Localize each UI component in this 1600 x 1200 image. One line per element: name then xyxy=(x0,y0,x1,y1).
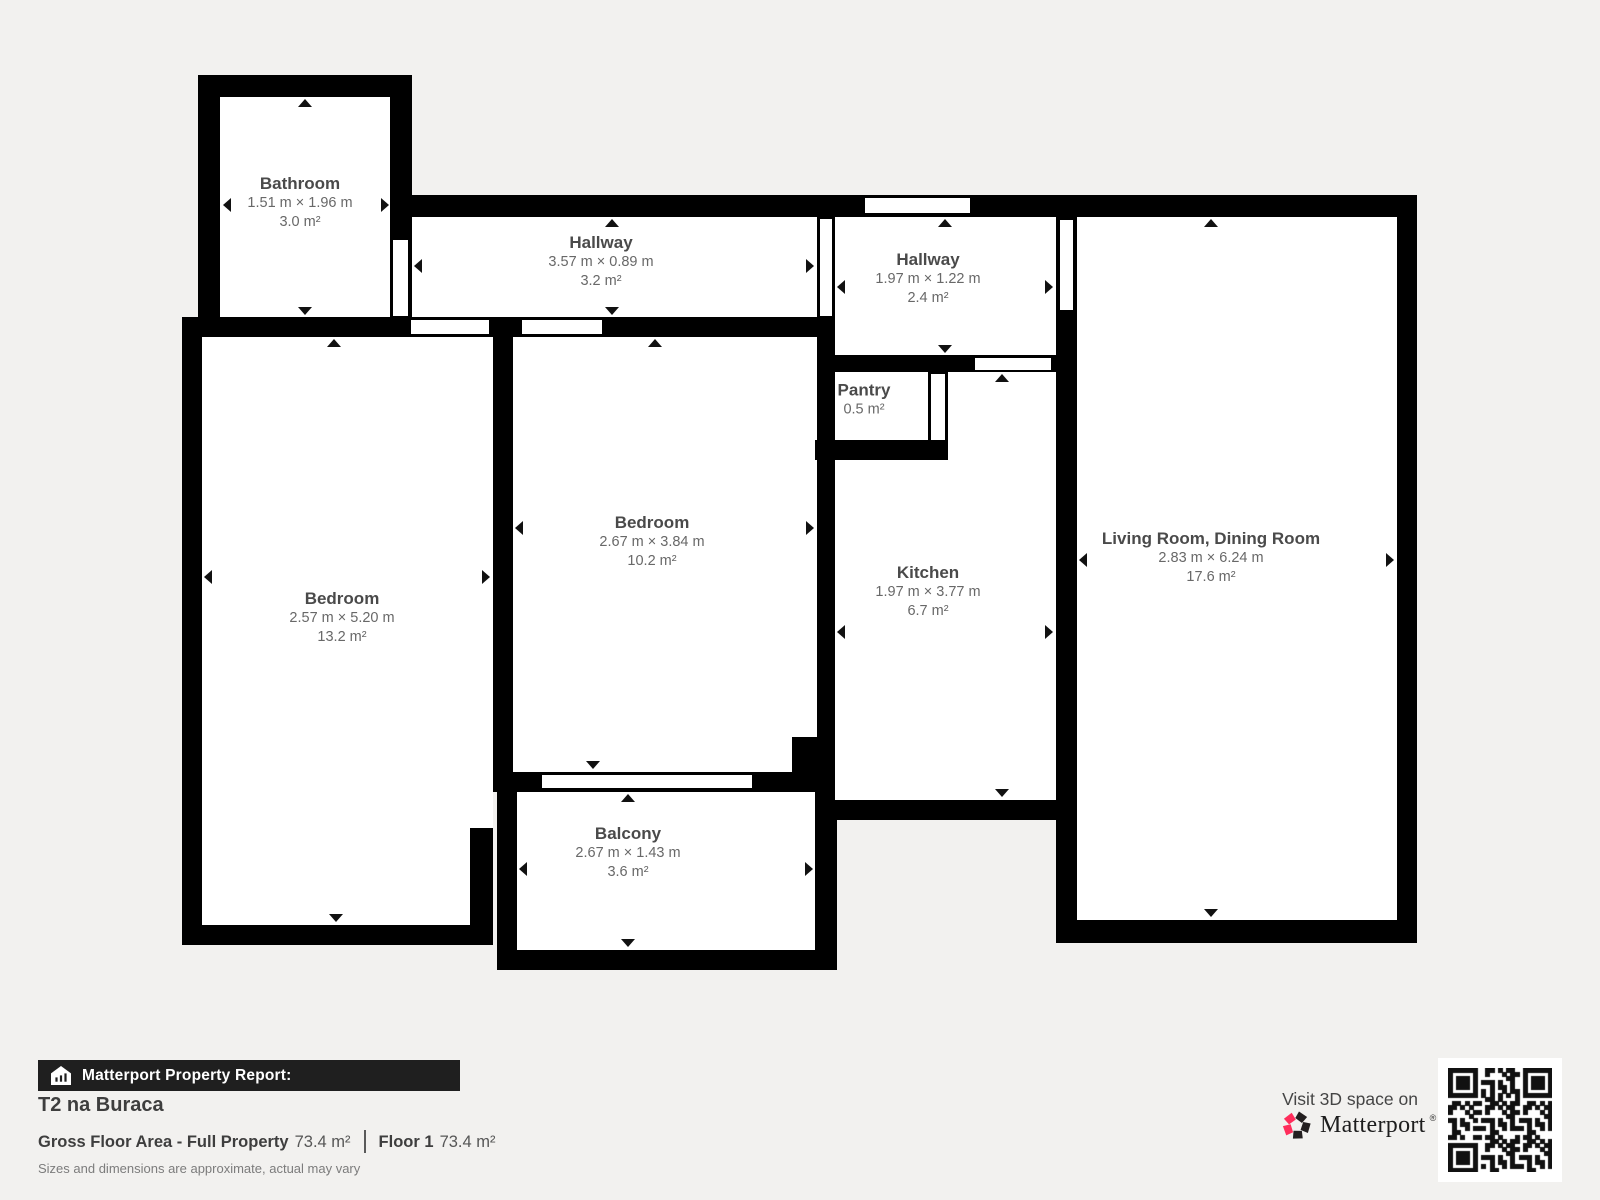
dimension-arrow-r xyxy=(1045,625,1053,639)
dimension-arrow-u xyxy=(327,339,341,347)
dimension-arrow-r xyxy=(806,521,814,535)
dimension-arrow-l xyxy=(204,570,212,584)
door-opening xyxy=(820,219,832,316)
wall-segment xyxy=(1397,195,1417,943)
room-dimensions: 3.57 m × 0.89 m xyxy=(548,253,653,272)
dimension-arrow-d xyxy=(605,307,619,315)
room-label-balcony: Balcony 2.67 m × 1.43 m 3.6 m² xyxy=(575,824,680,882)
room-label-living-dining: Living Room, Dining Room 2.83 m × 6.24 m… xyxy=(1102,529,1320,587)
divider xyxy=(364,1130,366,1153)
room-label-hallway-top: Hallway 3.57 m × 0.89 m 3.2 m² xyxy=(548,233,653,291)
gfa-value: 73.4 m² xyxy=(295,1133,351,1151)
dimension-arrow-u xyxy=(995,374,1009,382)
room-dimensions: 1.97 m × 3.77 m xyxy=(875,583,980,602)
room-name: Pantry xyxy=(838,381,891,401)
wall-segment xyxy=(815,440,948,460)
floor-plan: Bathroom 1.51 m × 1.96 m 3.0 m² Hallway … xyxy=(0,0,1600,1200)
dimension-arrow-d xyxy=(938,345,952,353)
floor-value: 73.4 m² xyxy=(440,1133,496,1151)
room-label-pantry: Pantry 0.5 m² xyxy=(838,381,891,420)
dimension-arrow-l xyxy=(837,625,845,639)
dimension-arrow-d xyxy=(1204,909,1218,917)
wall-segment xyxy=(182,925,493,945)
door-opening xyxy=(542,775,752,788)
room-area: 13.2 m² xyxy=(289,628,394,647)
dimension-arrow-u xyxy=(1204,219,1218,227)
gfa-label: Gross Floor Area - Full Property xyxy=(38,1133,289,1151)
dimension-arrow-u xyxy=(298,99,312,107)
wall-segment xyxy=(390,195,835,217)
door-opening xyxy=(975,358,1051,370)
house-report-icon xyxy=(51,1066,71,1085)
room-dimensions: 1.97 m × 1.22 m xyxy=(875,270,980,289)
matterport-logo: Matterport ® xyxy=(1281,1110,1436,1141)
dimension-arrow-r xyxy=(1386,553,1394,567)
dimension-arrow-d xyxy=(298,307,312,315)
room-label-kitchen: Kitchen 1.97 m × 3.77 m 6.7 m² xyxy=(875,563,980,621)
dimension-arrow-r xyxy=(482,570,490,584)
report-bar: Matterport Property Report: xyxy=(38,1060,460,1091)
wall-segment xyxy=(198,75,220,337)
room-name: Bedroom xyxy=(289,589,394,609)
wall-segment xyxy=(815,800,1056,820)
dimension-arrow-r xyxy=(806,259,814,273)
room-area: 6.7 m² xyxy=(875,602,980,621)
room-dimensions: 2.57 m × 5.20 m xyxy=(289,609,394,628)
room-area: 0.5 m² xyxy=(838,401,891,420)
door-opening xyxy=(865,198,970,213)
dimension-arrow-r xyxy=(381,198,389,212)
door-opening xyxy=(393,240,408,316)
property-name: T2 na Buraca xyxy=(38,1094,164,1117)
room-name: Living Room, Dining Room xyxy=(1102,529,1320,549)
dimension-arrow-u xyxy=(938,219,952,227)
room-dimensions: 2.67 m × 3.84 m xyxy=(599,533,704,552)
door-opening xyxy=(411,320,489,334)
room-label-bathroom: Bathroom 1.51 m × 1.96 m 3.0 m² xyxy=(247,174,352,232)
room-dimensions: 1.51 m × 1.96 m xyxy=(247,194,352,213)
dimension-arrow-d xyxy=(586,761,600,769)
disclaimer-text: Sizes and dimensions are approximate, ac… xyxy=(38,1161,360,1176)
dimension-arrow-u xyxy=(605,219,619,227)
room-area: 3.6 m² xyxy=(575,863,680,882)
matterport-pinwheel-icon xyxy=(1281,1110,1312,1141)
room-area: 3.2 m² xyxy=(548,272,653,291)
wall-segment xyxy=(493,337,513,772)
room-dimensions: 2.83 m × 6.24 m xyxy=(1102,549,1320,568)
room-area: 2.4 m² xyxy=(875,289,980,308)
dimension-arrow-l xyxy=(1079,553,1087,567)
wall-segment xyxy=(792,737,817,772)
floor-area-summary: Gross Floor Area - Full Property73.4 m²F… xyxy=(38,1130,496,1153)
room-name: Hallway xyxy=(875,250,980,270)
registered-mark: ® xyxy=(1430,1113,1437,1123)
room-label-hallway-entry: Hallway 1.97 m × 1.22 m 2.4 m² xyxy=(875,250,980,308)
wall-segment xyxy=(1056,920,1417,943)
room-label-bedroom-middle: Bedroom 2.67 m × 3.84 m 10.2 m² xyxy=(599,513,704,571)
floorplan-page: Bathroom 1.51 m × 1.96 m 3.0 m² Hallway … xyxy=(0,0,1600,1200)
visit-3d-label: Visit 3D space on xyxy=(1272,1089,1428,1110)
door-opening xyxy=(1060,220,1073,310)
wall-segment xyxy=(497,772,517,970)
room-name: Balcony xyxy=(575,824,680,844)
dimension-arrow-r xyxy=(1045,280,1053,294)
dimension-arrow-l xyxy=(515,521,523,535)
room-dimensions: 2.67 m × 1.43 m xyxy=(575,844,680,863)
room-name: Bedroom xyxy=(599,513,704,533)
dimension-arrow-d xyxy=(329,914,343,922)
dimension-arrow-u xyxy=(648,339,662,347)
wall-segment xyxy=(198,75,412,97)
door-opening xyxy=(931,374,945,440)
room-name: Bathroom xyxy=(247,174,352,194)
dimension-arrow-d xyxy=(621,939,635,947)
wall-segment xyxy=(1056,217,1077,943)
dimension-arrow-l xyxy=(223,198,231,212)
door-opening xyxy=(522,320,602,334)
room-label-bedroom-left: Bedroom 2.57 m × 5.20 m 13.2 m² xyxy=(289,589,394,647)
qr-code xyxy=(1438,1058,1562,1182)
matterport-wordmark: Matterport xyxy=(1320,1112,1426,1139)
dimension-arrow-l xyxy=(414,259,422,273)
wall-segment xyxy=(497,950,837,970)
dimension-arrow-l xyxy=(519,862,527,876)
room-name: Hallway xyxy=(548,233,653,253)
report-bar-label: Matterport Property Report: xyxy=(82,1067,292,1085)
dimension-arrow-u xyxy=(621,794,635,802)
room-name: Kitchen xyxy=(875,563,980,583)
wall-segment xyxy=(182,337,202,945)
dimension-arrow-r xyxy=(805,862,813,876)
room-area: 3.0 m² xyxy=(247,213,352,232)
floor-label: Floor 1 xyxy=(379,1133,434,1151)
dimension-arrow-d xyxy=(995,789,1009,797)
room-area: 10.2 m² xyxy=(599,552,704,571)
wall-segment xyxy=(182,317,835,337)
dimension-arrow-l xyxy=(837,280,845,294)
room-area: 17.6 m² xyxy=(1102,568,1320,587)
wall-segment xyxy=(470,828,493,945)
